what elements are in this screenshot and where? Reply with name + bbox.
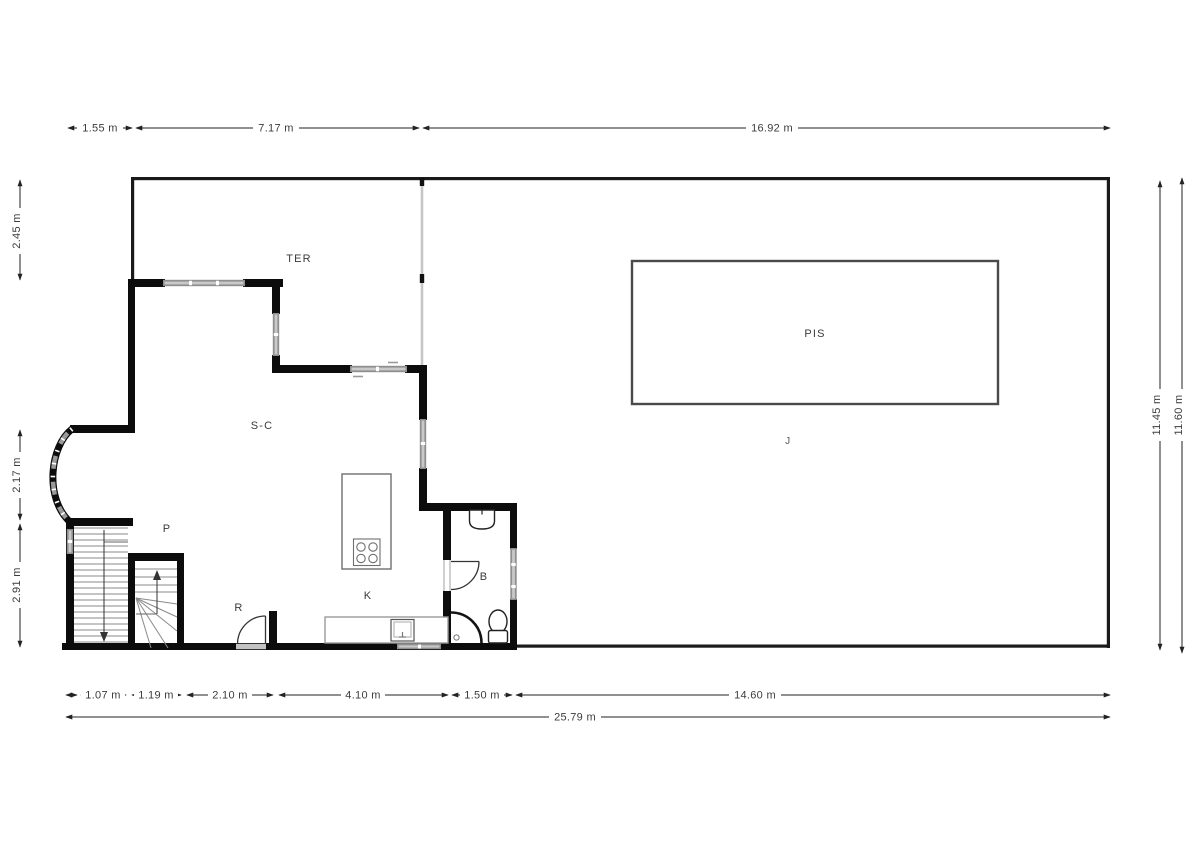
window-k [420,419,426,469]
dim-bottom-5: 1.50 m [464,690,499,702]
room-label-pool: PIS [804,328,825,340]
dim-bottom-1: 1.07 m [85,690,120,702]
kitchen-sink [391,620,414,642]
dim-bottom-total: 25.79 m [554,712,596,724]
divider-tick-top [420,178,424,186]
staircase-winder [135,569,177,648]
kitchen-island [342,474,391,569]
room-label-terrace: TER [286,253,312,265]
wall [128,553,184,561]
dim-bottom-3: 2.10 m [212,690,247,702]
boundary-right [1107,177,1110,648]
staircase-main [74,528,128,642]
floor-plan-page: TER PIS J S-C P R K B 1.55 m 7.17 m 16.9… [0,0,1200,849]
room-label-garden: J [785,436,791,447]
dim-bottom-4: 4.10 m [345,690,380,702]
room-label-living: S-C [251,420,274,432]
wall [128,279,135,433]
floor-plan-canvas: TER PIS J S-C P R K B 1.55 m 7.17 m 16.9… [0,0,1200,849]
bathroom-sink [470,510,495,529]
wall [272,279,280,314]
room-label-p: P [163,523,172,535]
boundary-bottom [514,645,1110,648]
dim-right-1: 11.45 m [1151,394,1163,435]
door-r [238,616,266,644]
bay-window [53,429,72,522]
dim-left-3: 2.91 m [11,567,23,602]
window-top [163,280,245,286]
dim-top-1: 1.55 m [82,123,117,135]
divider-tick-mid [420,274,424,283]
room-label-bathroom: B [480,571,489,583]
wall [443,507,451,560]
window-bath [510,548,516,600]
winder-treads [135,569,177,648]
window-stairs [67,529,73,554]
dim-top-2: 7.17 m [258,123,293,135]
room-label-kitchen: K [364,590,373,602]
toilet [489,610,508,643]
wall [419,503,517,511]
wall [510,503,517,549]
room-label-r: R [234,602,243,614]
kitchen-counter [325,617,448,643]
wall [419,365,427,420]
wall [66,518,133,526]
wall [510,599,517,650]
plot-boundary [131,177,1110,648]
door-b [451,562,479,590]
cooktop [354,539,381,566]
wall [269,611,277,650]
stair-arrow-down [100,530,108,642]
wall [128,553,135,650]
stair-treads [74,528,128,642]
dim-left-1: 2.45 m [11,213,23,248]
boundary-top [131,177,1110,180]
wall [177,553,184,650]
dim-bottom-6: 14.60 m [734,690,776,702]
boundary-left [131,177,134,283]
shower-drain [454,635,459,640]
dim-bottom-2: 1.19 m [138,690,173,702]
dim-left-2: 2.17 m [11,457,23,492]
window-sc [350,363,407,377]
shower [451,613,482,644]
wall [272,365,352,373]
door-threshold [236,644,266,649]
window-kitchen [397,644,441,649]
terrace-divider [420,178,424,368]
dim-top-3: 16.92 m [751,123,793,135]
window-side [273,313,279,356]
house-walls [62,279,517,650]
wall [70,425,135,433]
dim-right-2: 11.60 m [1173,394,1185,435]
